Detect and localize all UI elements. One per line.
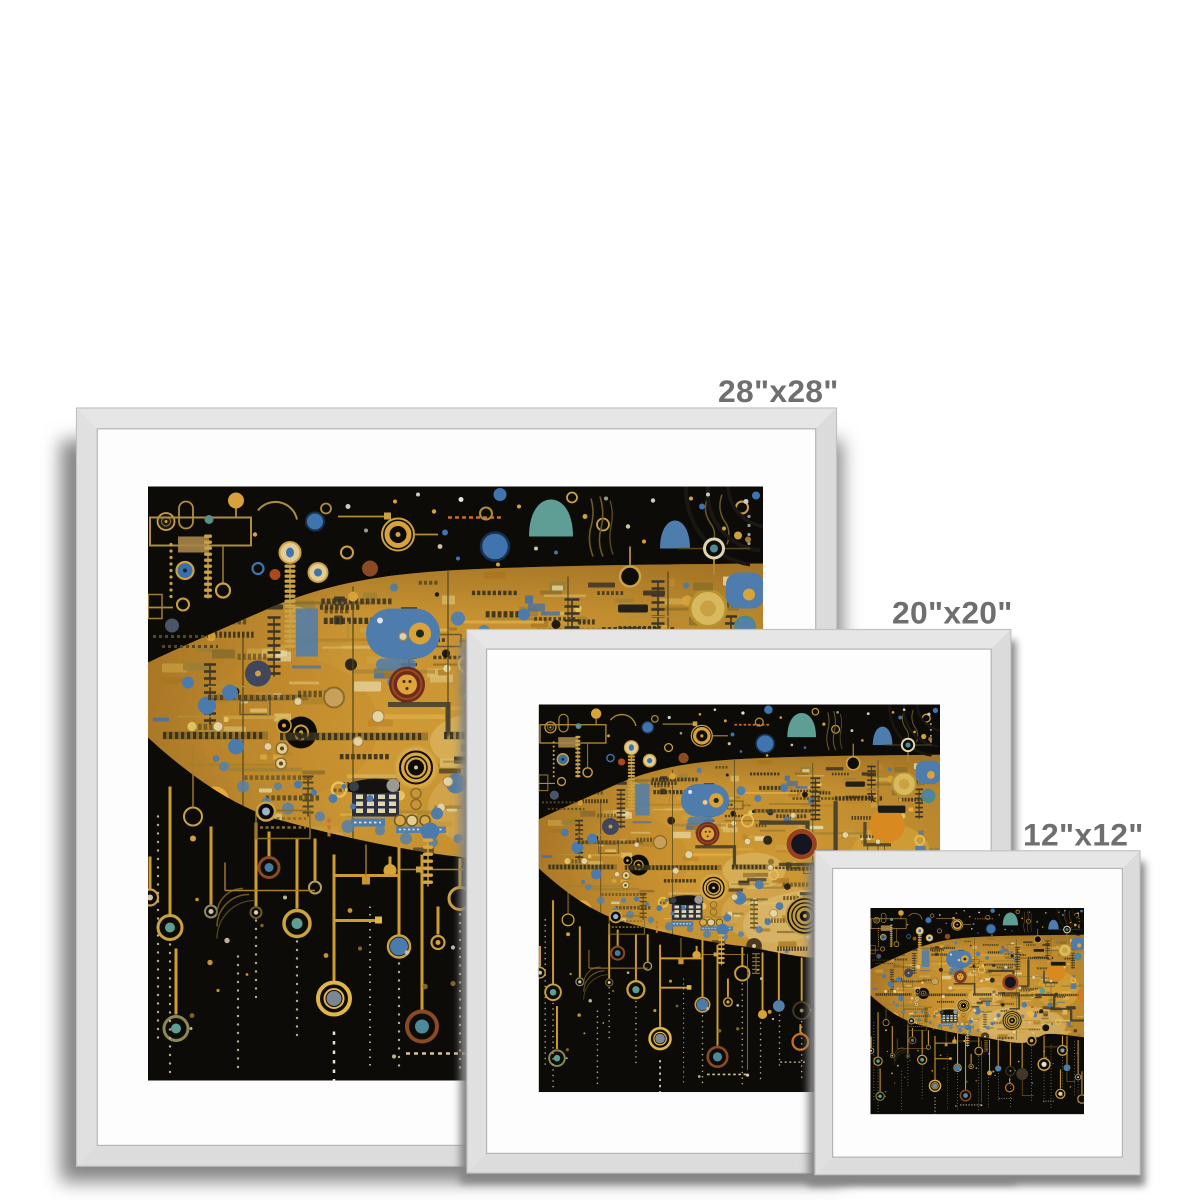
svg-text:28"x28": 28"x28" xyxy=(718,373,839,409)
svg-text:12"x12": 12"x12" xyxy=(1023,817,1144,853)
svg-text:20"x20": 20"x20" xyxy=(892,595,1013,631)
